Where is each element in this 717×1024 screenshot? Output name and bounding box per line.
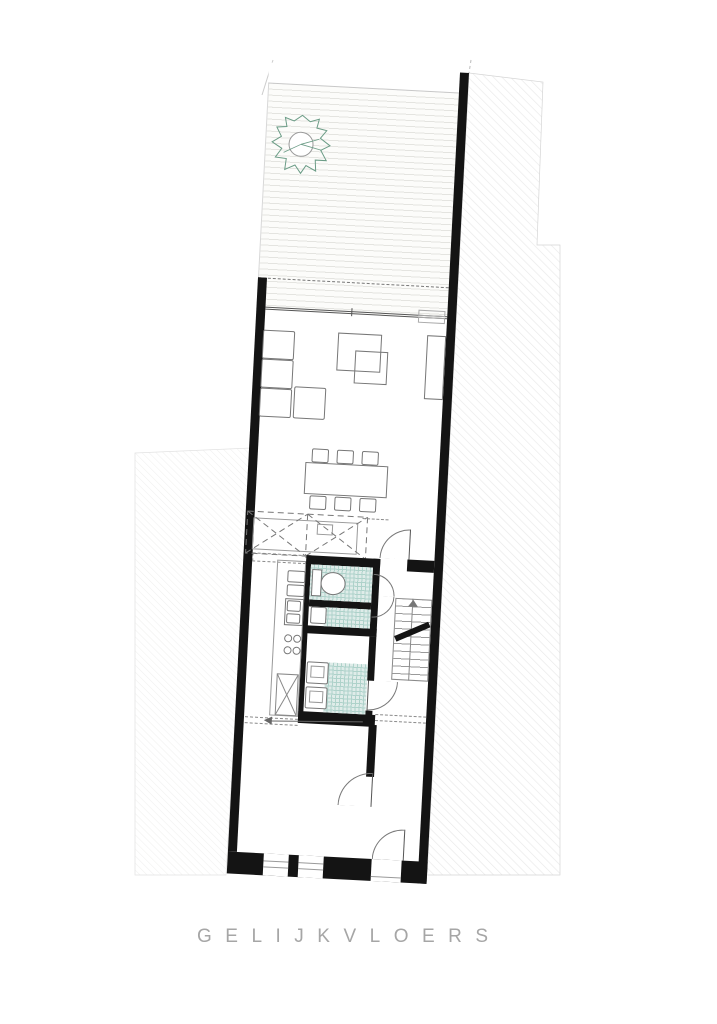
dining-chair — [334, 497, 352, 512]
hall-dashed-line — [375, 720, 426, 724]
washing-machine-door — [310, 666, 325, 679]
floor-title: GELIJKVLOERS — [197, 926, 502, 948]
facade-entrance-opening — [371, 859, 402, 883]
coffee-table-small — [354, 350, 389, 385]
floorplan-canvas: GELIJKVLOERS — [0, 0, 717, 1024]
stair-direction-arrow — [408, 600, 418, 608]
washroom-floor-tiles — [324, 607, 371, 628]
dining-chair — [336, 450, 354, 465]
entry-axis-arrowhead — [264, 716, 272, 724]
rear-door-tick — [351, 308, 352, 316]
window-sill-line — [263, 866, 288, 868]
bathroom-door-swing — [366, 681, 398, 713]
sofa-chaise-module — [293, 386, 327, 420]
entrance-threshold-line — [371, 876, 401, 879]
facade-window — [263, 853, 289, 876]
dining-table — [304, 462, 389, 498]
dining-chair — [359, 498, 377, 513]
oven — [286, 584, 305, 597]
entrance-door-leaf — [403, 830, 406, 861]
front-room-door-swing — [338, 771, 374, 807]
dining-chair — [311, 448, 329, 463]
oven — [287, 570, 306, 583]
washbasin — [310, 606, 327, 624]
building-outline — [227, 63, 469, 884]
entrance-door-swing — [372, 828, 405, 861]
dining-chair — [361, 451, 379, 466]
tree-icon — [268, 112, 333, 177]
bathroom-floor-tiles — [323, 662, 368, 714]
sofa-module — [260, 359, 293, 390]
hall-door-swing-upper — [373, 574, 396, 597]
dishwasher-x-cabinet — [274, 673, 300, 718]
sofa-module — [262, 330, 295, 361]
sink-basin — [286, 613, 301, 624]
sideboard — [424, 335, 446, 400]
hall-wall-stub — [366, 725, 377, 777]
living-hall-door-leaf — [408, 530, 411, 560]
facade-window — [298, 855, 324, 878]
toilet — [310, 566, 348, 600]
landing-wall — [407, 559, 435, 572]
hall-dashed-line — [375, 714, 426, 718]
window-sill-line — [298, 862, 323, 864]
rear-step-lower — [418, 317, 445, 324]
boundary-line-top-right — [469, 60, 471, 73]
living-hall-door-swing — [379, 528, 411, 560]
window-sill-line — [263, 860, 288, 862]
bath-right-wall — [367, 637, 376, 681]
sink-basin — [287, 600, 302, 612]
dryer-door — [309, 690, 324, 703]
window-sill-line — [298, 868, 323, 870]
sofa-module — [259, 388, 292, 419]
dining-chair — [309, 495, 327, 510]
hall-door-swing-lower — [371, 596, 394, 619]
